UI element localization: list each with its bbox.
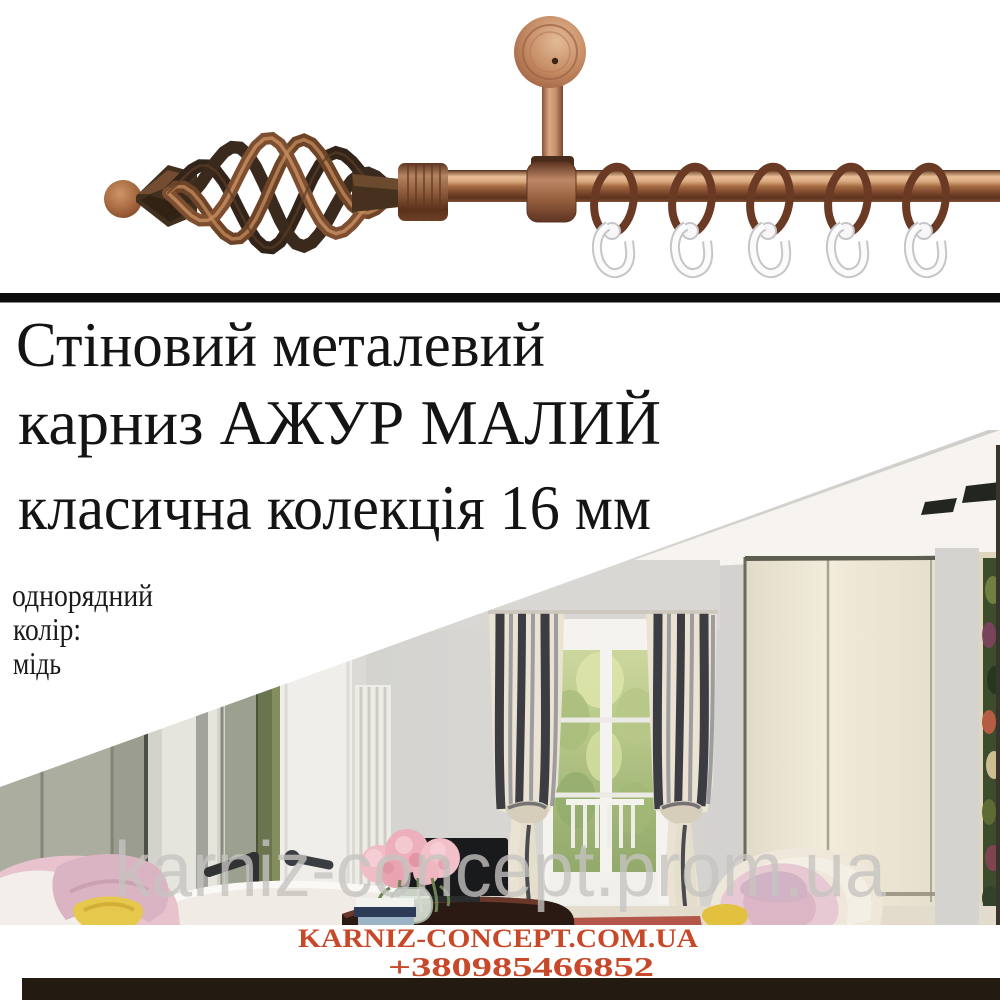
svg-text:мідь: мідь — [13, 645, 61, 681]
svg-text:karniz-concept.prom.ua: karniz-concept.prom.ua — [114, 825, 887, 913]
svg-text:класична колекція 16 мм: класична колекція 16 мм — [18, 473, 651, 543]
svg-text:Стіновий металевий: Стіновий металевий — [16, 310, 545, 380]
svg-text:колір:: колір: — [13, 611, 81, 647]
svg-text:+380985466852: +380985466852 — [388, 952, 654, 982]
svg-text:KARNIZ-CONCEPT.COM.UA: KARNIZ-CONCEPT.COM.UA — [298, 924, 698, 953]
svg-text:карниз АЖУР МАЛИЙ: карниз АЖУР МАЛИЙ — [18, 388, 661, 458]
svg-text:однорядний: однорядний — [12, 577, 153, 613]
